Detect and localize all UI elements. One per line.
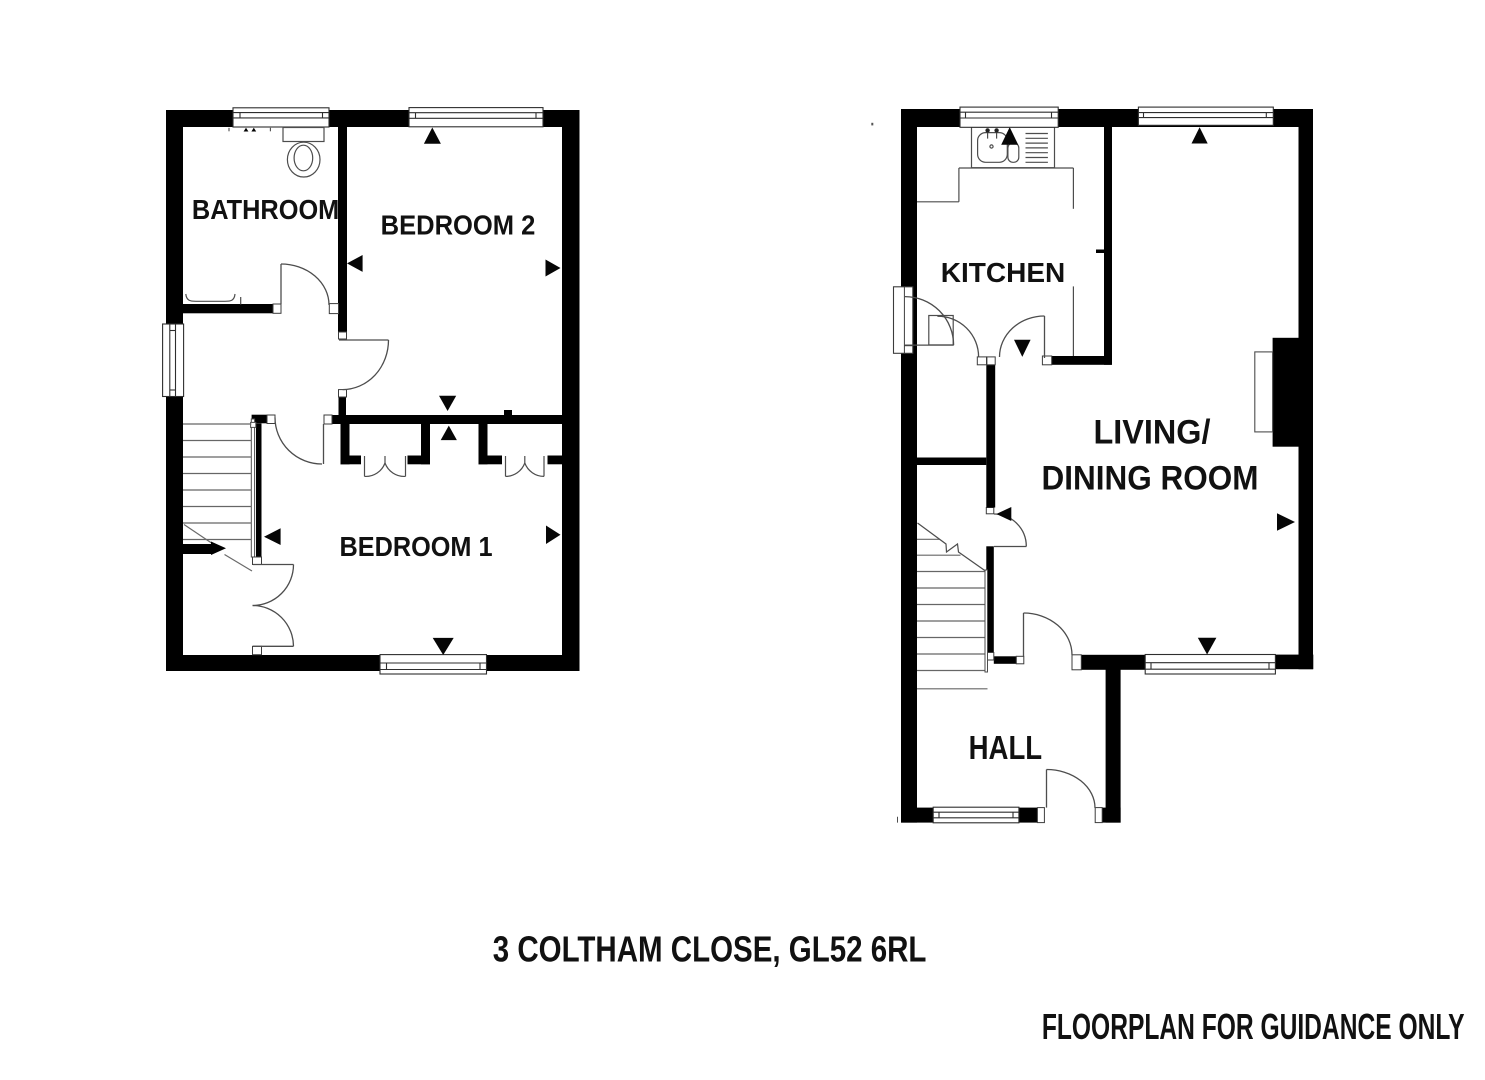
svg-text:BEDROOM 1: BEDROOM 1	[340, 531, 493, 562]
svg-text:BATHROOM: BATHROOM	[192, 194, 339, 225]
svg-text:FLOORPLAN FOR GUIDANCE ONLY: FLOORPLAN FOR GUIDANCE ONLY	[1042, 1006, 1465, 1047]
svg-text:HALL: HALL	[969, 729, 1043, 766]
svg-text:KITCHEN: KITCHEN	[941, 257, 1066, 288]
svg-text:LIVING/: LIVING/	[1094, 414, 1212, 452]
svg-text:DINING ROOM: DINING ROOM	[1042, 460, 1259, 498]
svg-text:3 COLTHAM CLOSE, GL52 6RL: 3 COLTHAM CLOSE, GL52 6RL	[493, 929, 927, 970]
svg-text:BEDROOM 2: BEDROOM 2	[381, 209, 536, 240]
